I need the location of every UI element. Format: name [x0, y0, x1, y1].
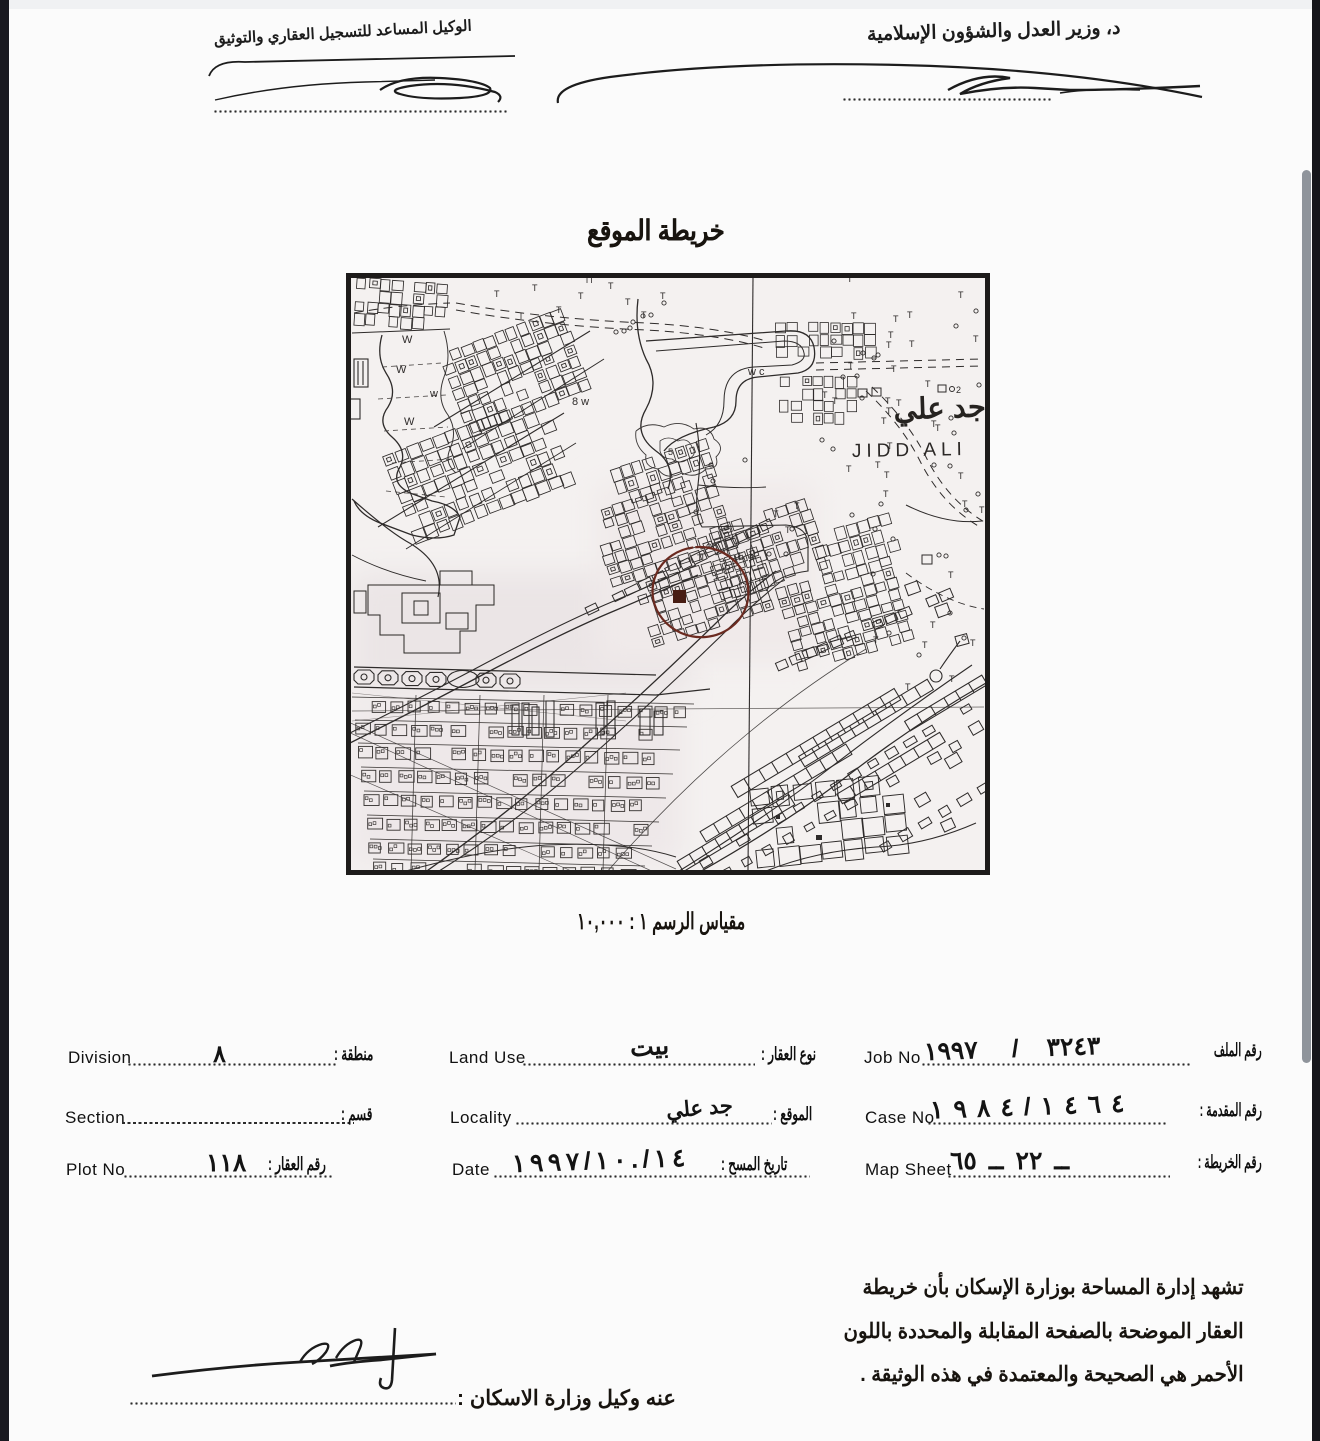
svg-text:T: T [907, 310, 913, 320]
svg-text:T: T [925, 379, 931, 389]
svg-text:T: T [846, 464, 852, 474]
svg-text:l: l [520, 311, 522, 321]
svg-text:W: W [404, 416, 415, 428]
svg-text:T: T [832, 396, 838, 406]
svg-text:T: T [893, 314, 899, 324]
svg-text:W: W [396, 364, 407, 376]
svg-text:T: T [973, 334, 979, 344]
svg-text:T: T [888, 330, 894, 340]
svg-text:T: T [922, 640, 928, 650]
svg-text:T: T [979, 505, 985, 515]
svg-text:T: T [494, 289, 500, 299]
svg-text:8 w: 8 w [572, 396, 589, 408]
svg-text:T: T [886, 340, 892, 350]
svg-text:T: T [851, 311, 857, 321]
svg-text:T: T [660, 291, 666, 301]
svg-text:T: T [930, 620, 936, 630]
svg-text:T: T [532, 283, 538, 293]
svg-text:w: w [429, 388, 438, 400]
svg-text:T: T [891, 364, 897, 374]
svg-text:5: 5 [668, 447, 673, 457]
svg-text:T: T [935, 423, 941, 433]
svg-text:T: T [962, 499, 968, 509]
svg-text:T: T [608, 281, 614, 291]
svg-text:JIDD ALI: JIDD ALI [852, 439, 967, 462]
svg-text:جد علي: جد علي [893, 391, 986, 427]
svg-text:T: T [884, 470, 890, 480]
svg-text:T: T [958, 471, 964, 481]
svg-text:T: T [885, 396, 891, 406]
svg-text:T: T [848, 361, 854, 371]
svg-text:T: T [896, 398, 902, 408]
svg-text:W: W [402, 334, 413, 346]
svg-text:T: T [641, 310, 647, 320]
svg-text:T: T [822, 390, 828, 400]
svg-text:T: T [948, 570, 954, 580]
svg-text:T: T [881, 416, 887, 426]
svg-text:T: T [785, 525, 791, 535]
svg-text:T: T [625, 297, 631, 307]
svg-text:T: T [578, 291, 584, 301]
svg-text:T: T [883, 489, 889, 499]
svg-text:T: T [909, 339, 915, 349]
svg-text:T: T [958, 290, 964, 300]
svg-text:T: T [875, 460, 881, 470]
svg-text:T: T [970, 638, 976, 648]
svg-text:T: T [886, 406, 892, 416]
svg-text:T: T [887, 441, 893, 451]
